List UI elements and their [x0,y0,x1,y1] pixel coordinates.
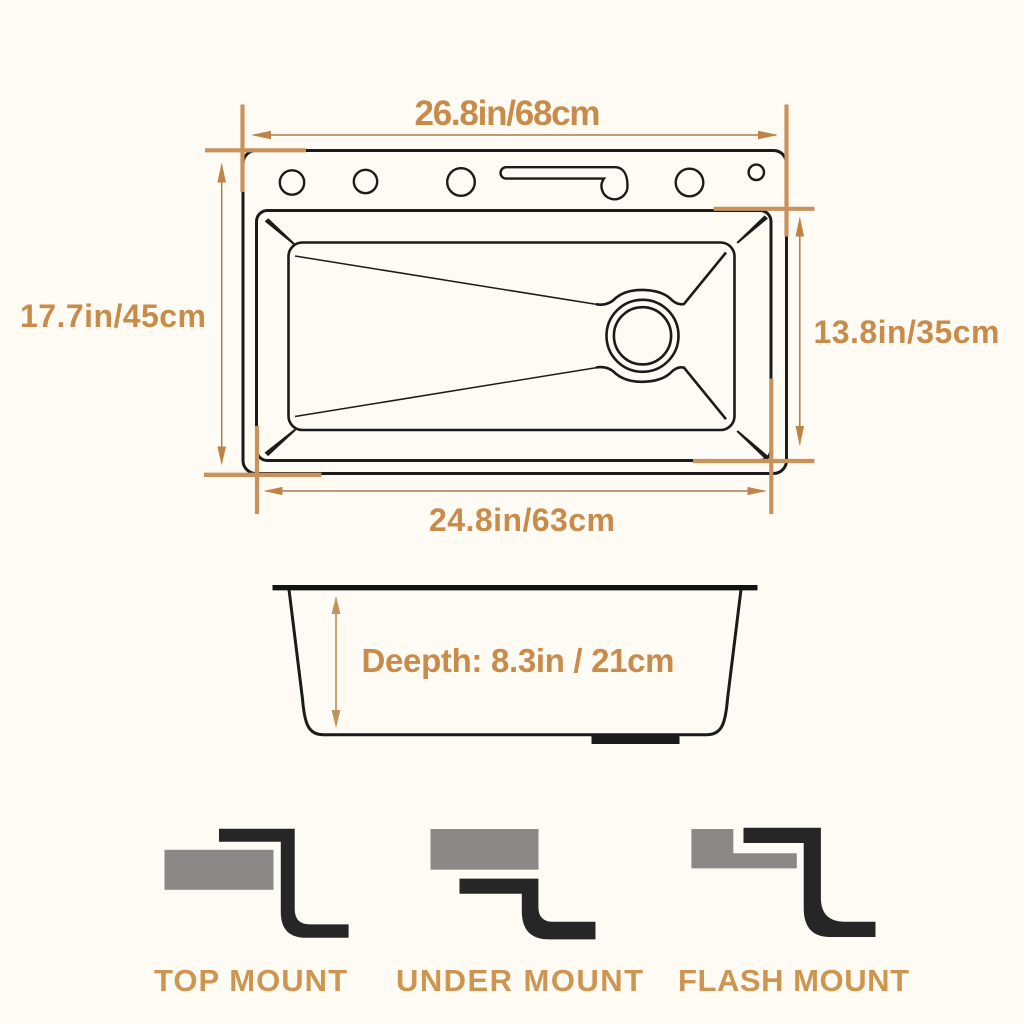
svg-text:UNDER MOUNT: UNDER MOUNT [396,963,643,998]
svg-text:FLASH MOUNT: FLASH MOUNT [678,963,909,998]
svg-text:Deepth: 8.3in / 21cm: Deepth: 8.3in / 21cm [362,642,675,679]
svg-text:13.8in/35cm: 13.8in/35cm [814,314,1000,350]
svg-text:26.8in/68cm: 26.8in/68cm [415,94,601,133]
svg-text:17.7in/45cm: 17.7in/45cm [20,298,206,334]
svg-text:TOP MOUNT: TOP MOUNT [154,963,347,998]
svg-text:24.8in/63cm: 24.8in/63cm [429,502,615,538]
